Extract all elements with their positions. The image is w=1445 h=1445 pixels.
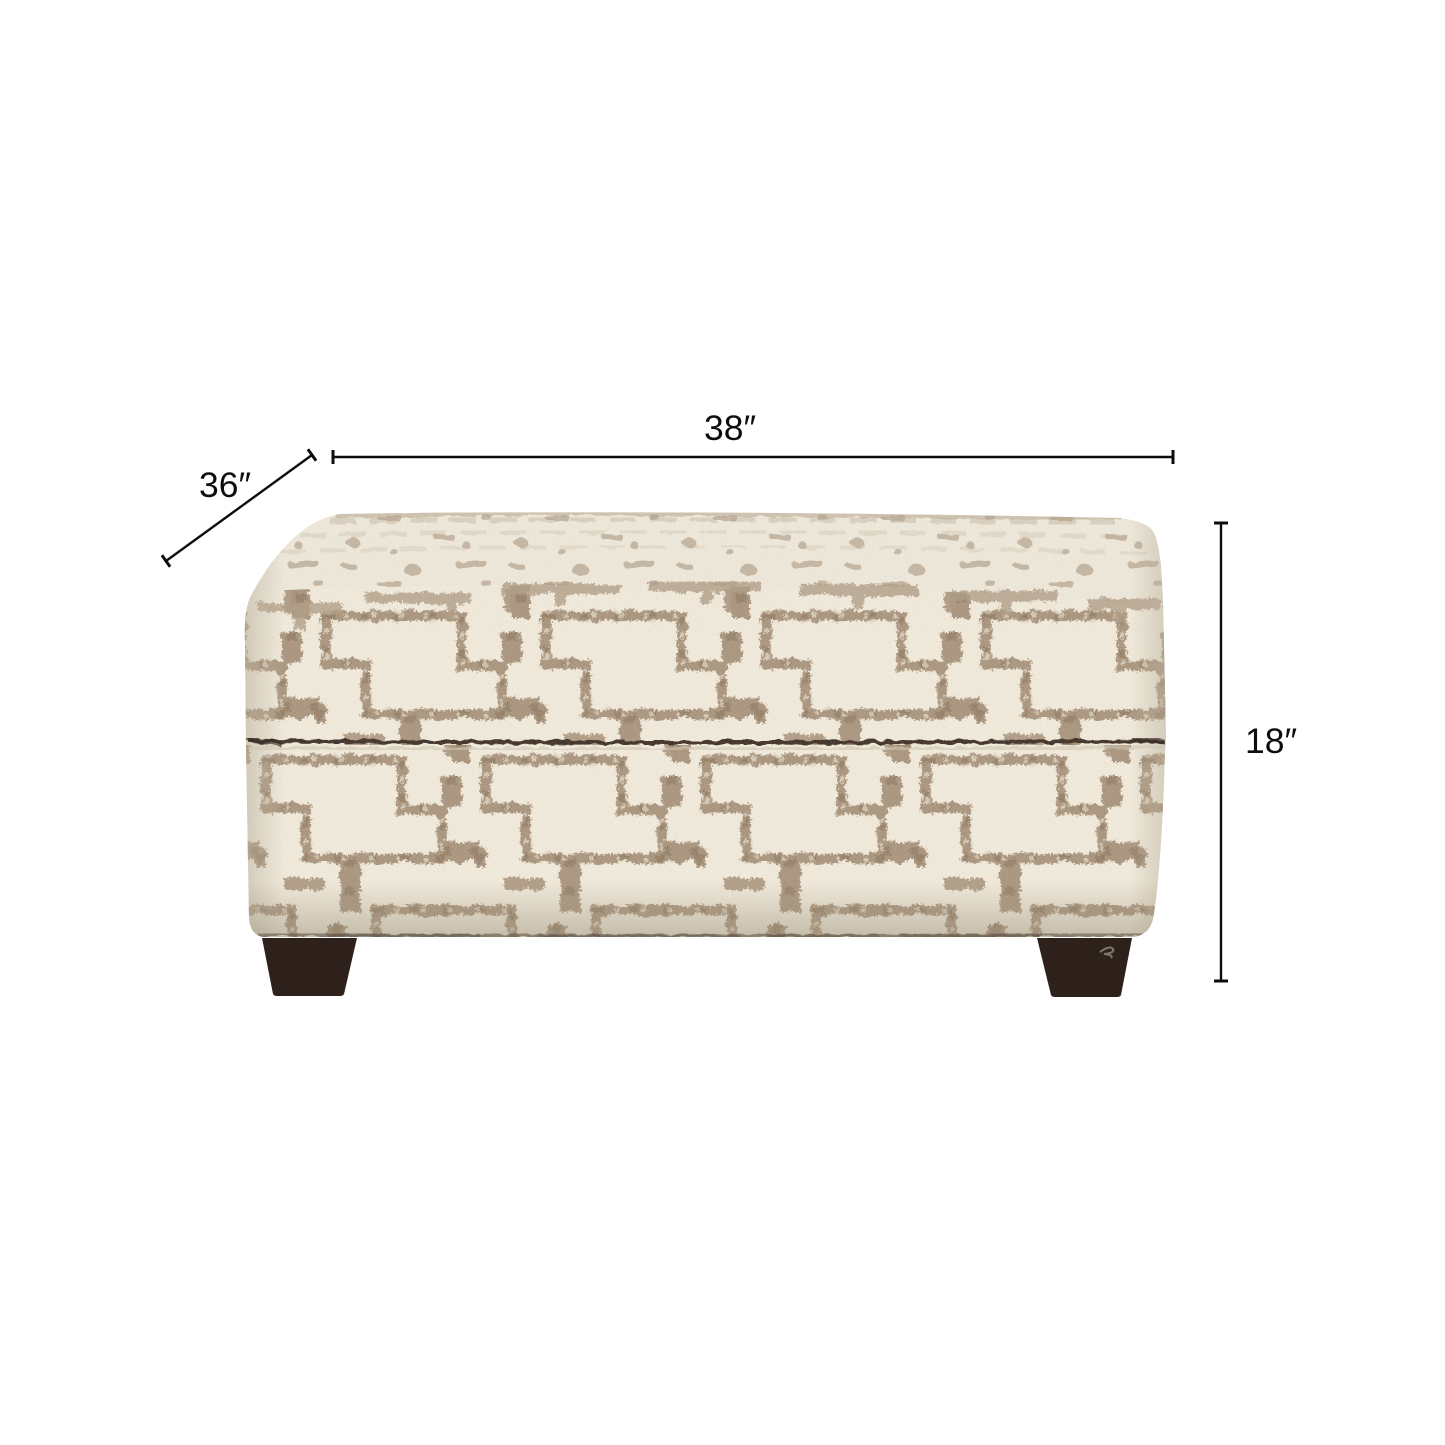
svg-text:18″: 18″: [1245, 721, 1297, 761]
svg-text:38″: 38″: [704, 408, 756, 448]
svg-text:36″: 36″: [199, 465, 251, 505]
